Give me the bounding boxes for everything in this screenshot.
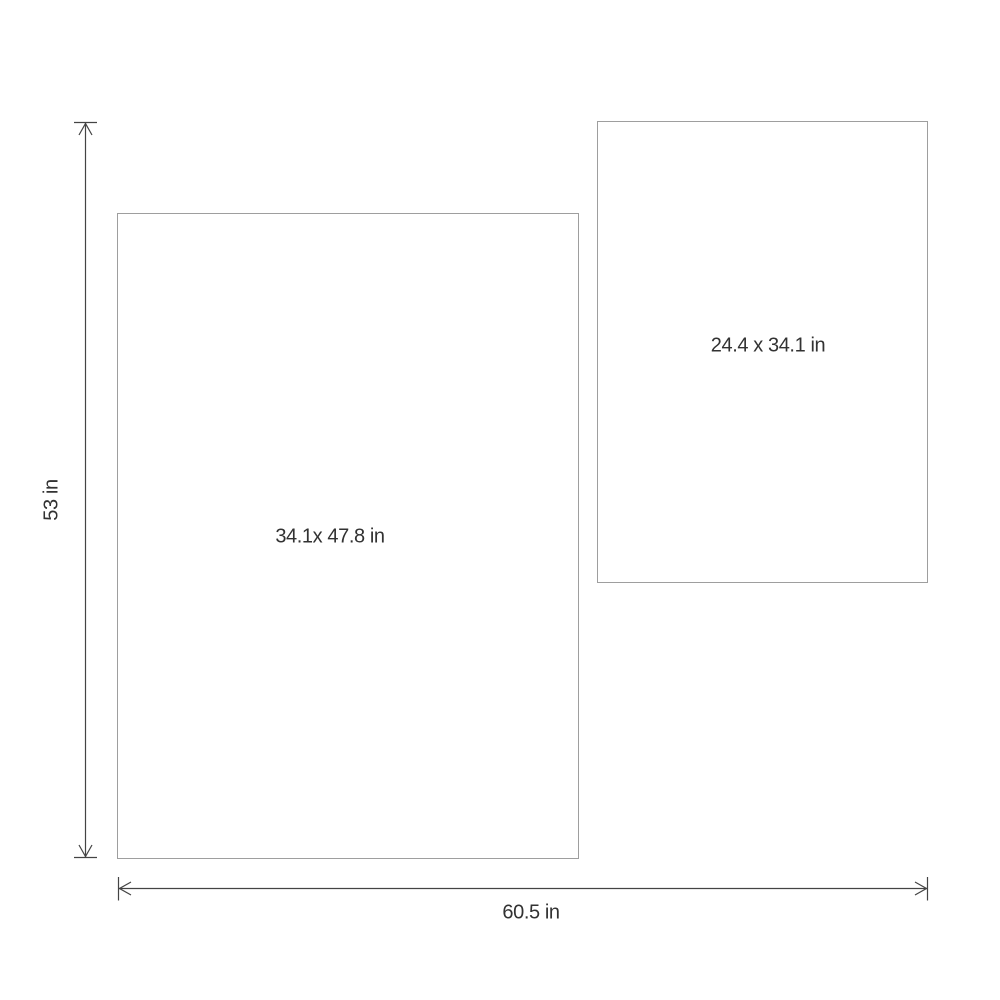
height-dimension-label: 53 in <box>41 479 64 520</box>
dimension-arrows <box>0 0 1000 1000</box>
small-panel-size-label: 24.4 x 34.1 in <box>711 335 826 358</box>
large-panel-size-label: 34.1x 47.8 in <box>275 526 384 549</box>
width-dimension-label: 60.5 in <box>502 902 559 925</box>
width-dimension-arrow <box>119 877 928 901</box>
dimension-diagram: 34.1x 47.8 in 24.4 x 34.1 in 53 in 60.5 … <box>0 0 1000 1000</box>
height-dimension-arrow <box>74 123 97 858</box>
